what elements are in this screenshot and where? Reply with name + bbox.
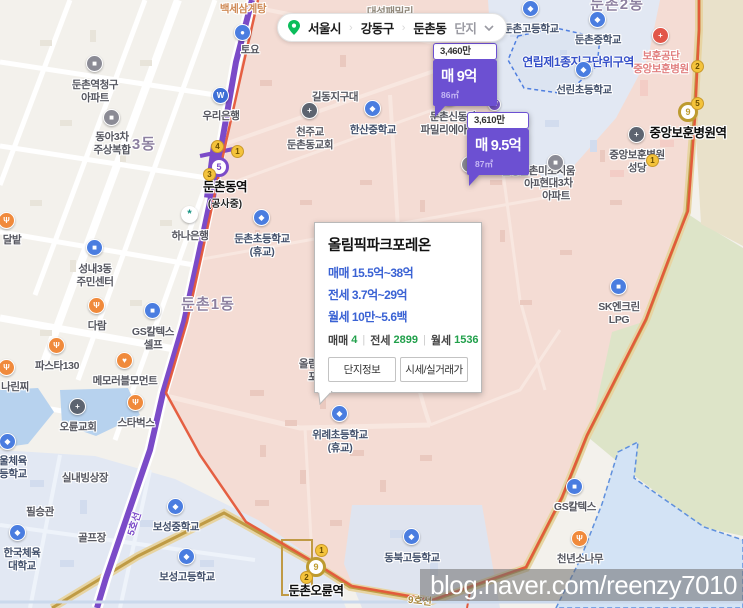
unit-area: 86㎡: [441, 89, 491, 101]
price-history-button[interactable]: 시세/실거래가: [400, 357, 468, 382]
station-exit-badge: 3: [203, 168, 216, 181]
poi-label[interactable]: 실내빙상장: [62, 472, 108, 485]
poi-label[interactable]: 파스타130: [35, 360, 79, 373]
cafe-icon: Ψ: [127, 394, 144, 411]
gas-icon: ■: [144, 302, 161, 319]
region-filter-bar[interactable]: 서울시 › 강동구 › 둔촌동 단지: [277, 13, 507, 42]
poi-label[interactable]: 한국체육대학교: [3, 547, 40, 573]
station-exit-badge: 4: [211, 140, 224, 153]
per-pyeong-badge: 3,610만: [467, 112, 529, 129]
station-name[interactable]: 둔촌동역(공사중): [203, 176, 247, 210]
building-icon: ■: [547, 154, 564, 171]
count-value: 4: [351, 334, 357, 346]
card-buttons: 단지정보 시세/실거래가: [328, 357, 468, 382]
poi-label[interactable]: 달밭: [3, 234, 22, 247]
hospital-icon: +: [652, 27, 669, 44]
watermark: blog.naver.com/reenzy7010: [420, 569, 743, 601]
poi-label[interactable]: 메모러블모먼트: [93, 375, 158, 388]
station-exit-badge: 2: [691, 60, 704, 73]
school-icon: ◆: [253, 209, 270, 226]
count-label: 월세: [431, 332, 451, 348]
school-icon: ◆: [364, 100, 381, 117]
school-icon: ◆: [403, 528, 420, 545]
school-icon: ◆: [575, 61, 592, 78]
filter-gu[interactable]: 강동구: [361, 18, 394, 37]
poi-label[interactable]: 나린찌: [1, 381, 29, 394]
count-separator: |: [362, 334, 365, 346]
filter-danji-dropdown[interactable]: 단지: [454, 18, 476, 37]
building-icon: ■: [103, 109, 120, 126]
poi-label[interactable]: 현대3차아파트: [539, 177, 572, 203]
poi-label[interactable]: 백세삼계탕: [220, 3, 266, 16]
poi-label[interactable]: 동아3차주상복합: [93, 131, 130, 157]
food-icon: Ψ: [48, 337, 65, 354]
school-icon: ◆: [178, 548, 195, 565]
complex-info-card: 올림픽파크포레온 매매 15.5억~38억 전세 3.7억~29억 월세 10만…: [314, 222, 482, 393]
listing-counts: 매매 4 | 전세 2899 | 월세 1536: [328, 332, 468, 348]
gas-icon: ■: [610, 278, 627, 295]
school-icon: ◆: [331, 405, 348, 422]
map-viewport[interactable]: 백세삼계탕대성패밀리●토요■둔촌역청구아파트W우리은행■동아3차주상복합*하나은…: [0, 0, 743, 608]
heart-icon: ♥: [116, 352, 133, 369]
poi-label[interactable]: 우리은행: [202, 110, 239, 123]
station-exit-badge: 1: [646, 154, 659, 167]
price-marker-9eok[interactable]: 3,460만 매 9억 86㎡: [433, 43, 497, 106]
station-exit-badge: 5: [691, 97, 704, 110]
church-icon: +: [628, 126, 645, 143]
price-marker-95eok[interactable]: 3,610만 매 9.5억 87㎡: [467, 112, 529, 175]
station-name[interactable]: 둔촌오륜역: [288, 580, 343, 599]
poi-label[interactable]: 둔촌고등학교: [503, 23, 559, 36]
poi-label[interactable]: 오륜교회: [59, 421, 96, 434]
poi-label[interactable]: 하나은행: [171, 230, 208, 243]
poi-label[interactable]: 보성고등학교: [159, 571, 215, 584]
station-exit-badge: 1: [231, 145, 244, 158]
per-pyeong-badge: 3,460만: [433, 43, 497, 60]
filter-separator: ›: [349, 22, 353, 34]
poi-label[interactable]: 필승관: [26, 506, 54, 519]
location-pin-icon: [288, 20, 300, 36]
poi-label[interactable]: GS칼텍스셀프: [132, 326, 174, 352]
district-label: 3동: [132, 133, 156, 154]
unit-area: 87㎡: [475, 158, 523, 170]
store-icon: ●: [234, 24, 251, 41]
poi-label[interactable]: GS칼텍스: [554, 501, 596, 514]
count-value: 2899: [393, 334, 417, 346]
school-icon: ◆: [9, 524, 26, 541]
count-separator: |: [423, 334, 426, 346]
poi-label[interactable]: 토요: [241, 44, 260, 57]
poi-label[interactable]: SK엔크린LPG: [598, 301, 640, 327]
complex-title: 올림픽파크포레온: [328, 234, 468, 255]
gas-icon: ■: [566, 478, 583, 495]
marker-tail: [435, 105, 446, 117]
bank-hana-icon: *: [181, 206, 198, 223]
poi-label[interactable]: 스타벅스: [117, 417, 154, 430]
marker-tail: [469, 174, 480, 186]
count-label: 전세: [370, 332, 390, 348]
building-icon: ■: [86, 55, 103, 72]
poi-label[interactable]: 둔촌역청구아파트: [72, 79, 118, 105]
count-label: 매매: [328, 332, 348, 348]
filter-city[interactable]: 서울시: [308, 18, 341, 37]
school-icon: ◆: [589, 11, 606, 28]
filter-dong[interactable]: 둔촌동: [413, 18, 446, 37]
station-exit-badge: 1: [315, 544, 328, 557]
poi-label[interactable]: 다람: [88, 320, 107, 333]
poi-label[interactable]: 골프장: [78, 532, 106, 545]
food-icon: Ψ: [88, 297, 105, 314]
count-value: 1536: [454, 334, 478, 346]
wolse-range: 월세 10만~5.6백: [328, 308, 468, 325]
sale-price: 매 9억: [441, 65, 491, 86]
church-icon: +: [301, 102, 318, 119]
price-marker-body: 매 9억 86㎡: [433, 60, 497, 106]
price-marker-body: 매 9.5억 87㎡: [467, 129, 529, 175]
bank-woori-icon: W: [212, 87, 229, 104]
complex-info-button[interactable]: 단지정보: [328, 357, 396, 382]
poi-label[interactable]: 길동지구대: [312, 91, 358, 104]
station-name[interactable]: 중앙보훈병원역: [649, 122, 726, 141]
poi-label[interactable]: 보성중학교: [153, 521, 199, 534]
poi-label[interactable]: 천년소나무: [557, 553, 603, 566]
poi-label[interactable]: 천주교둔촌동교회: [287, 126, 333, 152]
poi-label[interactable]: 선린초등학교: [556, 84, 612, 97]
chevron-down-icon[interactable]: [484, 25, 494, 31]
poi-label[interactable]: 동북고등학교: [384, 552, 440, 565]
filter-separator: ›: [402, 22, 406, 34]
school-icon: ◆: [167, 498, 184, 515]
poi-label[interactable]: 위례초등학교(휴교): [312, 429, 368, 455]
jeonse-range: 전세 3.7억~29억: [328, 286, 468, 303]
office-icon: ■: [86, 239, 103, 256]
church-icon: +: [69, 398, 86, 415]
food-icon: Ψ: [571, 530, 588, 547]
poi-label[interactable]: 울체육등학교: [0, 455, 27, 481]
poi-label[interactable]: 성내3동주민센터: [76, 263, 113, 289]
poi-label[interactable]: 둔촌초등학교(휴교): [234, 233, 290, 259]
district-label: 둔촌1동: [181, 293, 235, 314]
poi-label[interactable]: 둔촌중학교: [575, 34, 621, 47]
sale-price: 매 9.5억: [475, 134, 523, 155]
school-icon: ◆: [522, 0, 539, 17]
sale-range: 매매 15.5억~38억: [328, 264, 468, 281]
poi-label[interactable]: 보훈공단중앙보훈병원: [633, 50, 689, 76]
card-tail: [318, 391, 334, 405]
poi-label[interactable]: 한산중학교: [350, 124, 396, 137]
station-exit-badge: 2: [300, 571, 313, 584]
